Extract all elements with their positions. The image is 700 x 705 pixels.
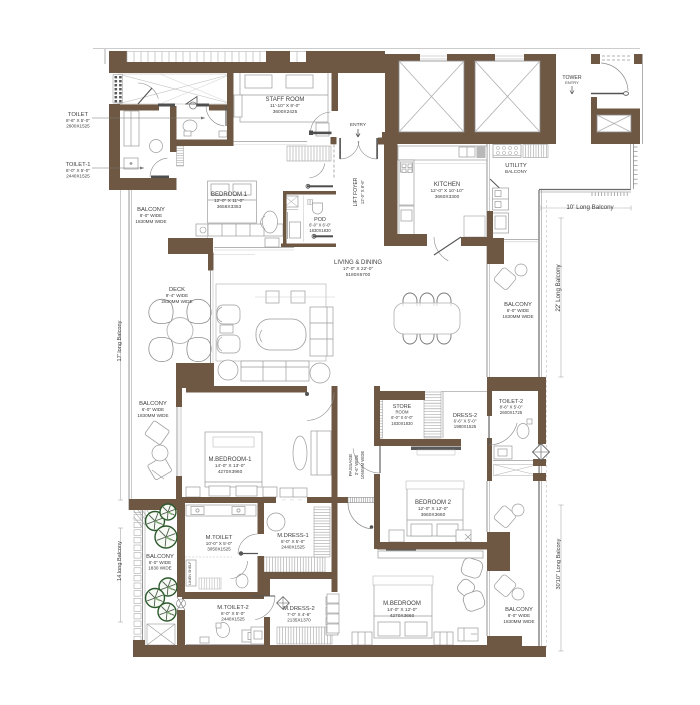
svg-text:10'-0" X 5'-0": 10'-0" X 5'-0" (206, 541, 233, 546)
svg-text:1830MM WIDE: 1830MM WIDE (135, 219, 166, 224)
svg-text:8'-0" X 5'-0": 8'-0" X 5'-0" (66, 168, 90, 173)
svg-text:3'-6" WIDE: 3'-6" WIDE (354, 455, 359, 476)
svg-text:6'-0" WIDE: 6'-0" WIDE (142, 407, 164, 412)
svg-text:1065MM WIDE: 1065MM WIDE (360, 451, 365, 480)
svg-text:BEDROOM 2: BEDROOM 2 (415, 500, 452, 506)
svg-text:12'-0" X 8'-6": 12'-0" X 8'-6" (360, 179, 365, 204)
svg-text:LIFT FOYER: LIFT FOYER (353, 177, 359, 206)
svg-text:6'-0" WIDE: 6'-0" WIDE (508, 613, 530, 618)
svg-text:4270X3960: 4270X3960 (218, 469, 243, 475)
svg-text:14'-0" X 12'-0": 14'-0" X 12'-0" (387, 607, 418, 613)
svg-text:2830MM WIDE: 2830MM WIDE (161, 299, 192, 304)
svg-text:ROOM: ROOM (395, 410, 409, 415)
svg-text:5180X6700: 5180X6700 (346, 272, 371, 278)
svg-text:8'-0" X 5'-0": 8'-0" X 5'-0" (221, 611, 245, 616)
svg-text:2440X1525: 2440X1525 (281, 545, 305, 550)
svg-text:6'-0" X 6'-0": 6'-0" X 6'-0" (391, 415, 413, 420)
svg-text:6'-6" X 5'-0": 6'-6" X 5'-0" (454, 419, 477, 424)
svg-text:7'-0" X 4'-6": 7'-0" X 4'-6" (287, 612, 311, 617)
svg-text:3050X1525: 3050X1525 (207, 547, 231, 552)
svg-text:2440X1525: 2440X1525 (66, 174, 90, 179)
svg-text:8'-6" X 5'-0": 8'-6" X 5'-0" (500, 405, 523, 410)
svg-text:17' long Balcony: 17' long Balcony (117, 320, 123, 361)
svg-text:2135X1370: 2135X1370 (287, 618, 311, 623)
svg-text:6'-0" WIDE: 6'-0" WIDE (149, 560, 171, 565)
svg-text:1830X1830: 1830X1830 (309, 228, 331, 233)
svg-text:11'-10" X 8'-0": 11'-10" X 8'-0" (270, 103, 300, 109)
svg-text:14'-0" X 13'-0": 14'-0" X 13'-0" (215, 463, 246, 469)
svg-text:3658X3353: 3658X3353 (217, 204, 242, 210)
svg-text:KITCHEN: KITCHEN (434, 182, 460, 188)
svg-text:M.BEDROOM: M.BEDROOM (383, 601, 421, 607)
svg-text:1830X1830: 1830X1830 (391, 421, 413, 426)
svg-text:STAFF ROOM: STAFF ROOM (266, 97, 305, 103)
svg-text:14 long Balcony: 14 long Balcony (117, 541, 123, 581)
svg-text:1830MM WIDE: 1830MM WIDE (503, 619, 534, 624)
svg-text:LINEN SHELF: LINEN SHELF (188, 561, 192, 585)
svg-text:10' Long Balcony: 10' Long Balcony (566, 204, 614, 211)
svg-text:1830MM WIDE: 1830MM WIDE (137, 413, 168, 418)
svg-text:30'10" Long Balcony: 30'10" Long Balcony (556, 538, 562, 589)
svg-text:17'-0" X 22'-0": 17'-0" X 22'-0" (343, 266, 374, 272)
svg-text:1830MM WIDE: 1830MM WIDE (502, 314, 533, 319)
svg-text:12'-0" X 12'-0": 12'-0" X 12'-0" (418, 506, 449, 512)
svg-text:8'-6" X 5'-0": 8'-6" X 5'-0" (66, 118, 90, 123)
svg-text:6'-0" X 6'-0": 6'-0" X 6'-0" (309, 222, 331, 227)
svg-text:2440X1525: 2440X1525 (221, 617, 245, 622)
svg-text:BALCONY: BALCONY (505, 169, 527, 174)
svg-text:LIVING & DINING: LIVING & DINING (334, 260, 382, 266)
svg-text:22' Long Balcony: 22' Long Balcony (555, 263, 562, 311)
svg-text:3660X3660: 3660X3660 (421, 512, 446, 518)
svg-text:M.BEDROOM-1: M.BEDROOM-1 (208, 457, 252, 463)
svg-text:1980X1525: 1980X1525 (454, 424, 477, 429)
svg-text:12'-0" X 10'-10": 12'-0" X 10'-10" (431, 188, 464, 194)
svg-text:2600X1525: 2600X1525 (66, 124, 90, 129)
svg-text:9'-4" WIDE: 9'-4" WIDE (166, 293, 188, 298)
svg-text:6'-0" WIDE: 6'-0" WIDE (507, 308, 529, 313)
svg-text:ENTRY: ENTRY (350, 122, 367, 128)
svg-text:BEDROOM 1: BEDROOM 1 (211, 192, 248, 198)
svg-text:ENTRY: ENTRY (565, 80, 579, 85)
svg-text:12'-0" X 11'-0": 12'-0" X 11'-0" (214, 198, 244, 204)
svg-text:3600X2425: 3600X2425 (273, 109, 298, 115)
svg-text:6'-0" WIDE: 6'-0" WIDE (140, 213, 162, 218)
svg-text:1830 WIDE: 1830 WIDE (148, 566, 172, 571)
svg-text:3660X3300: 3660X3300 (435, 194, 460, 200)
svg-text:4270X3660: 4270X3660 (390, 613, 415, 619)
svg-text:8'-0" X 5'-0": 8'-0" X 5'-0" (281, 539, 305, 544)
svg-text:2600X1725: 2600X1725 (500, 410, 523, 415)
